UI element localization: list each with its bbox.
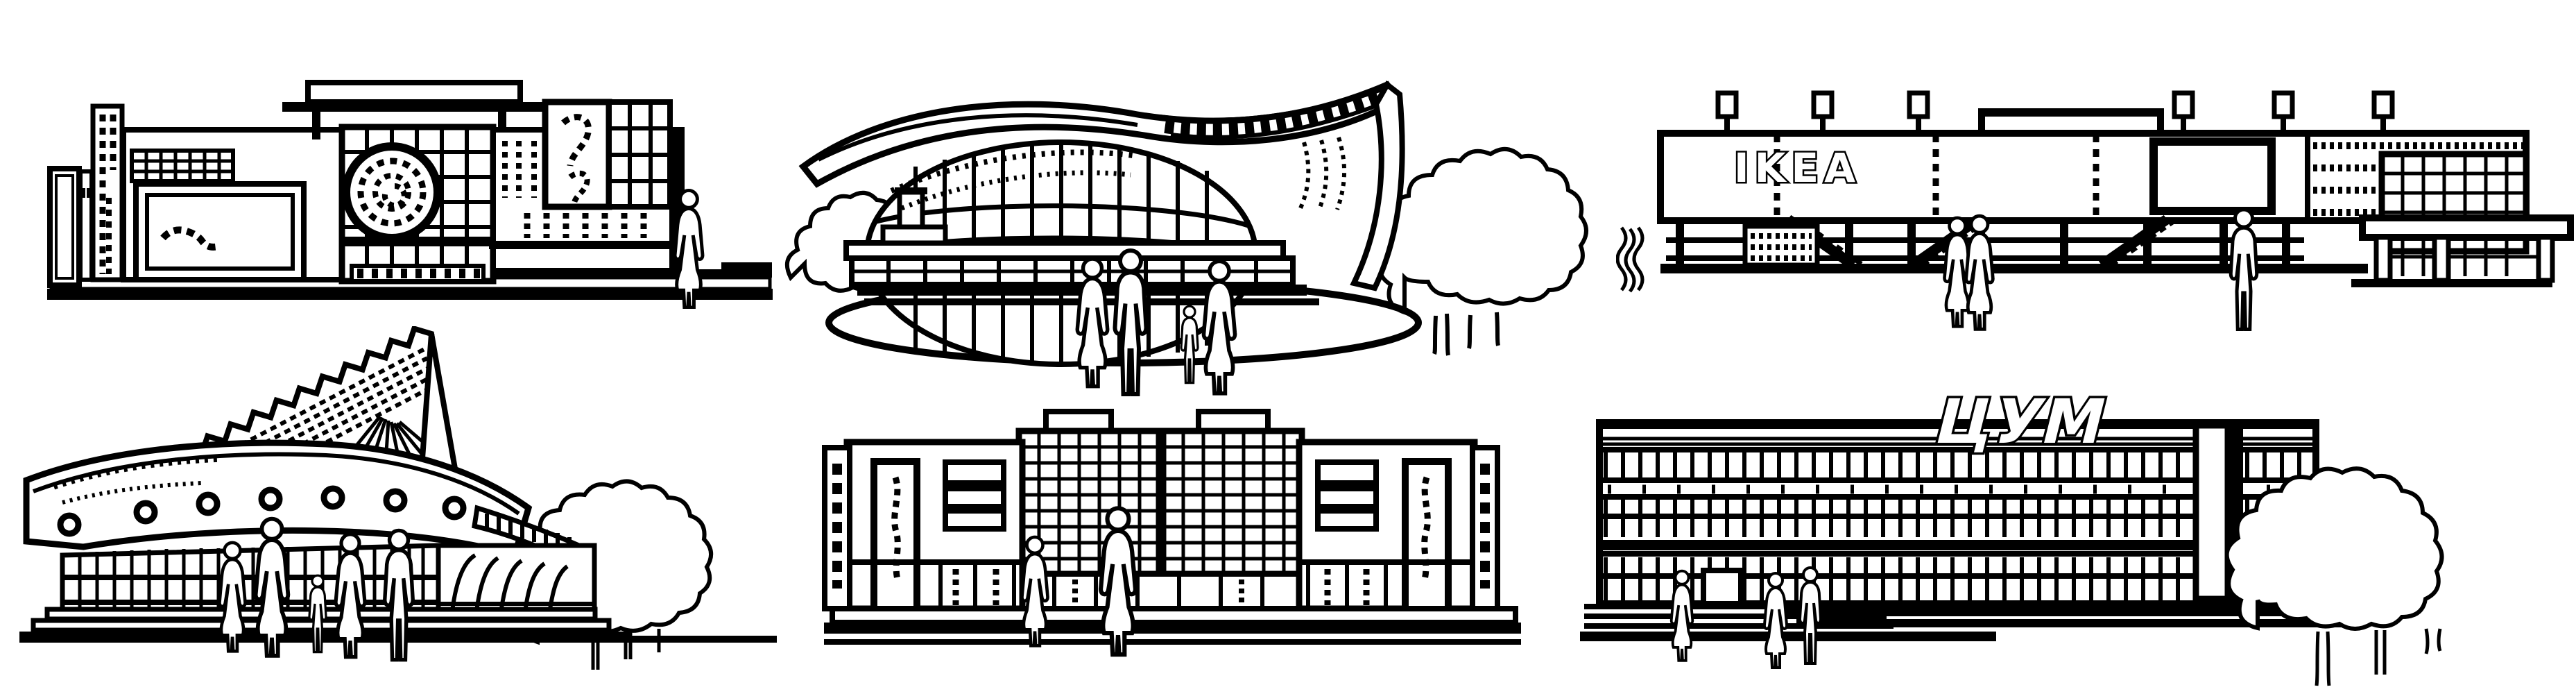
facade-billboard bbox=[2154, 142, 2272, 211]
person-silhouette bbox=[256, 519, 289, 656]
ikea-sign: IKEA bbox=[1734, 144, 1861, 192]
person-silhouette bbox=[2231, 210, 2257, 330]
entrance-door bbox=[1703, 570, 1741, 604]
person-silhouette bbox=[1966, 216, 1993, 329]
mall-with-round-emblem-illustration bbox=[42, 66, 777, 309]
left-billboard-slab bbox=[50, 169, 92, 285]
wave-roof-mall-illustration bbox=[777, 76, 1609, 403]
dash-art-panel bbox=[874, 462, 917, 611]
dotted-pylon bbox=[93, 106, 122, 280]
illustration-canvas: IKEA bbox=[0, 0, 2576, 694]
right-wing bbox=[1299, 442, 1497, 611]
center-tower bbox=[342, 127, 493, 281]
twin-tower-department-store-illustration bbox=[805, 403, 1540, 694]
left-block bbox=[123, 130, 347, 280]
entrance-band bbox=[1019, 574, 1302, 609]
dash-art-panel bbox=[1405, 462, 1448, 611]
right-tree bbox=[1380, 149, 1586, 355]
tsum-sign: ЦУМ bbox=[1928, 387, 2115, 457]
base-platform bbox=[824, 609, 1521, 645]
left-wing bbox=[825, 442, 1022, 611]
right-tree bbox=[2227, 468, 2442, 686]
tsum-department-store-illustration: ЦУМ bbox=[1574, 361, 2576, 687]
spiky-roof-circus-illustration bbox=[0, 326, 784, 687]
center-towers bbox=[1019, 431, 1302, 609]
flag-squiggles bbox=[1617, 228, 1642, 291]
ikea-store-illustration: IKEA bbox=[1616, 90, 2576, 333]
base-and-steps bbox=[1580, 604, 2351, 641]
tsum-sign-group: ЦУМ bbox=[1928, 387, 2115, 457]
roof-poles bbox=[1718, 93, 2392, 133]
right-block bbox=[489, 102, 682, 271]
roof-frame bbox=[1978, 108, 2164, 117]
support-structure bbox=[1660, 219, 2368, 273]
